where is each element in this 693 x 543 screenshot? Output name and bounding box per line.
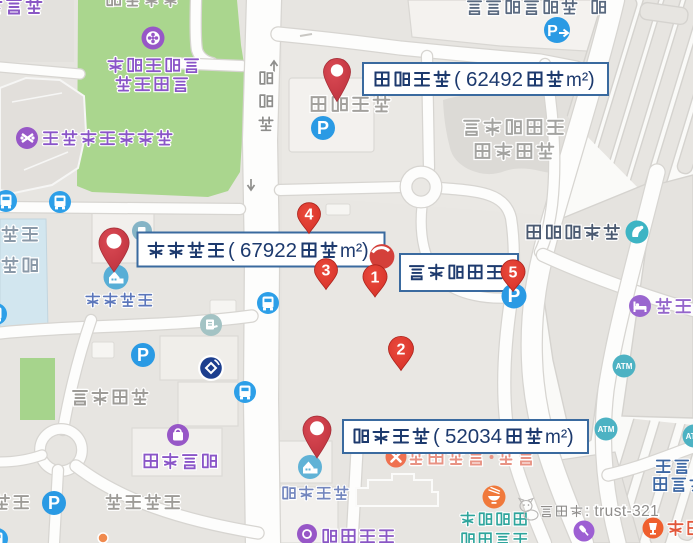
svg-text:52034: 52034 xyxy=(445,425,502,448)
svg-text:2: 2 xyxy=(397,342,406,359)
svg-text:m²: m² xyxy=(340,241,362,262)
svg-text:(: ( xyxy=(433,426,440,448)
svg-text:P: P xyxy=(137,345,149,365)
svg-text:P: P xyxy=(317,118,329,138)
svg-text:5: 5 xyxy=(509,265,518,282)
svg-text:(: ( xyxy=(454,69,461,91)
svg-text:): ) xyxy=(362,240,369,262)
svg-text:4: 4 xyxy=(305,207,314,224)
svg-text:67922: 67922 xyxy=(240,239,297,262)
svg-text:P: P xyxy=(547,23,558,40)
svg-text:m²: m² xyxy=(545,427,567,448)
svg-text:3: 3 xyxy=(322,263,331,280)
svg-text:ATM: ATM xyxy=(616,362,633,371)
svg-text:62492: 62492 xyxy=(466,68,523,91)
svg-text:ATM: ATM xyxy=(686,432,693,441)
svg-text:P: P xyxy=(48,493,60,513)
svg-text:m²: m² xyxy=(566,70,588,91)
svg-text:): ) xyxy=(588,69,595,91)
svg-text:1: 1 xyxy=(371,270,380,287)
svg-text:(: ( xyxy=(228,240,235,262)
svg-text:ATM: ATM xyxy=(598,425,615,434)
svg-text:: trust-321: : trust-321 xyxy=(585,503,659,520)
svg-text:): ) xyxy=(567,426,574,448)
